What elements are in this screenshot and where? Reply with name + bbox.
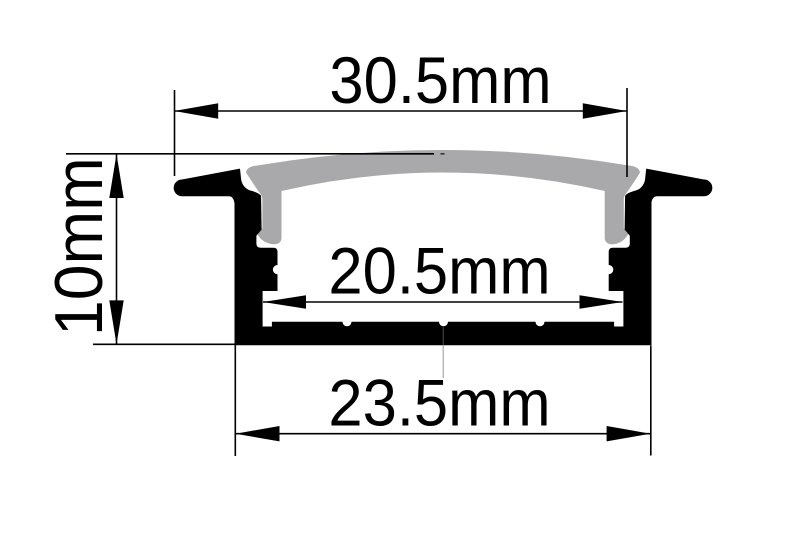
svg-text:20.5mm: 20.5mm [328, 235, 550, 308]
svg-text:30.5mm: 30.5mm [329, 44, 551, 117]
svg-text:10mm: 10mm [41, 157, 117, 336]
svg-text:23.5mm: 23.5mm [328, 367, 550, 440]
